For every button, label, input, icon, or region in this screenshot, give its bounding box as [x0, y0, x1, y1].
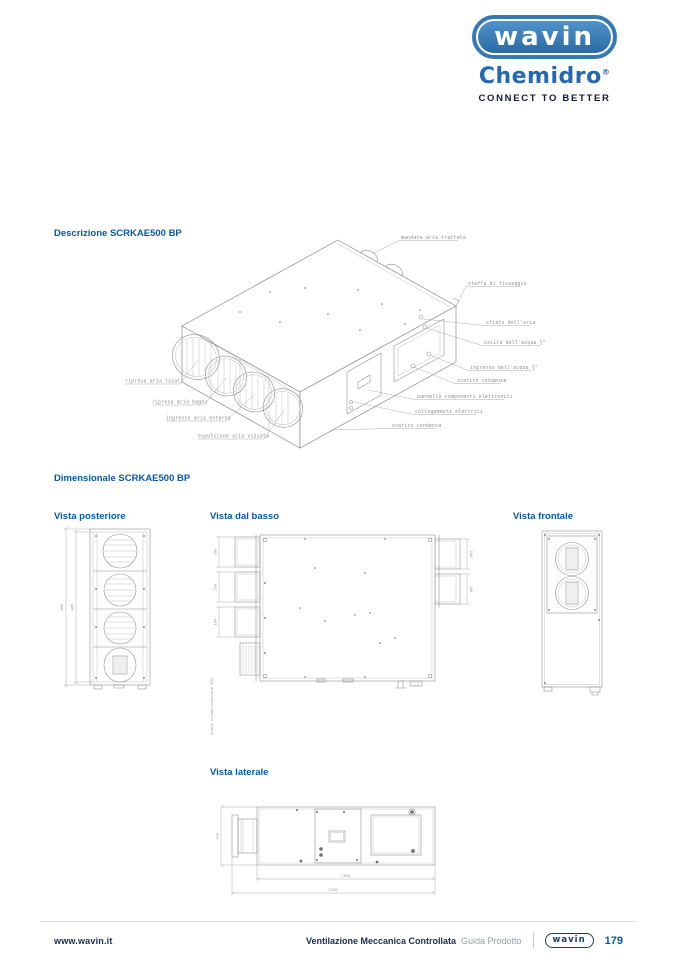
rear-unit-outline	[90, 529, 150, 685]
footer-right-group: Ventilazione Meccanica Controllata Guida…	[306, 933, 623, 948]
chemidro-wordmark: Chemidro	[479, 64, 602, 89]
dimensional-title: Dimensionale SCRKAE500 BP	[54, 473, 190, 484]
callout-ripresa-locali: ripresa aria locali	[125, 379, 184, 385]
dim-rear-outer: 850	[59, 603, 64, 611]
footer-doc-title: Ventilazione Meccanica Controllata	[306, 936, 456, 946]
dim-side-len1: 1030	[341, 873, 351, 878]
side-unit-outline	[257, 807, 435, 865]
callout-mandata: mandata aria trattata	[401, 235, 466, 241]
callout-ingresso-esterna: ingresso aria esterna	[166, 416, 231, 422]
view-frontale-title: Vista frontale	[513, 511, 573, 522]
bottom-corner-screws	[263, 538, 432, 678]
side-panels	[315, 809, 421, 863]
callout-collegamenti: collegamenti elettrici	[415, 409, 483, 415]
brand-block: wavin Chemidro® CONNECT TO BETTER	[472, 15, 617, 104]
side-duct-collar	[232, 815, 257, 857]
rear-view-drawing: 850 805	[50, 523, 170, 698]
isometric-drawing: mandata aria trattata staffa di fissaggi…	[120, 230, 560, 460]
side-dimensions: 310 1030 1250	[215, 805, 436, 895]
footer-divider	[533, 933, 534, 948]
wavin-logo: wavin	[472, 15, 617, 59]
dim-rear-inner: 805	[70, 604, 75, 611]
dim-side-len2: 1250	[328, 887, 338, 892]
view-laterale-title: Vista laterale	[210, 767, 268, 778]
bottom-scattered-screws	[299, 567, 396, 644]
callout-ingresso-acqua: ingresso dell'acqua ¾"	[470, 365, 538, 371]
dim-side-height: 310	[215, 832, 220, 840]
dim-bottom-right-1: 160	[469, 551, 474, 559]
front-fans	[556, 543, 589, 610]
footer-website: www.wavin.it	[54, 936, 113, 946]
dim-bottom-right-2: 160	[469, 586, 474, 594]
rear-dimensions: 850 805	[59, 527, 93, 687]
footer-doc-subtitle: Guida Prodotto	[461, 936, 522, 946]
callout-pannello: pannello componenti elettronici	[417, 394, 513, 400]
callout-uscita-acqua: uscita dell'acqua ¾"	[484, 340, 546, 346]
registered-mark: ®	[602, 68, 611, 77]
dim-bottom-left-1: 200	[213, 548, 218, 556]
view-posteriore-title: Vista posteriore	[54, 511, 126, 522]
bottom-view-drawing: 200 160 160 160 160 Scala visualizzazion…	[205, 523, 495, 738]
callout-ripresa-bagni: ripresa aria bagni	[152, 400, 208, 406]
bottom-unit-outline	[260, 535, 435, 681]
side-view-drawing: 310 1030 1250	[205, 783, 475, 908]
callout-scarico-basso: scarico condensa	[392, 423, 441, 429]
rear-fan-grilles	[103, 534, 137, 682]
callout-sfiato: sfiato dell'aria	[486, 320, 535, 326]
front-feet	[544, 687, 600, 695]
callout-staffa: staffa di fissaggio	[468, 281, 527, 287]
bottom-drain-fittings	[317, 679, 422, 688]
page-footer: www.wavin.it Ventilazione Meccanica Cont…	[40, 921, 637, 959]
dim-bottom-left-2: 160	[213, 583, 218, 591]
brand-tagline: CONNECT TO BETTER	[478, 93, 610, 104]
bottom-left-spigots	[235, 535, 260, 681]
footer-wavin-logo: wavin	[545, 933, 594, 948]
view-dal-basso-title: Vista dal basso	[210, 511, 279, 522]
front-view-drawing	[518, 523, 638, 698]
scale-note: Scala visualizzazione 50%	[209, 677, 214, 735]
bottom-right-spigots	[435, 535, 460, 608]
rear-feet	[94, 685, 146, 689]
rear-corner-screws	[95, 535, 145, 679]
wavin-logo-text: wavin	[478, 21, 611, 53]
chemidro-logo: Chemidro®	[479, 64, 610, 89]
callout-espulsione: espulsione aria viziata	[198, 434, 269, 440]
page-number: 179	[605, 935, 623, 947]
dim-bottom-left-3: 160	[213, 618, 218, 626]
callout-scarico-dx: scarico condensa	[457, 378, 506, 384]
